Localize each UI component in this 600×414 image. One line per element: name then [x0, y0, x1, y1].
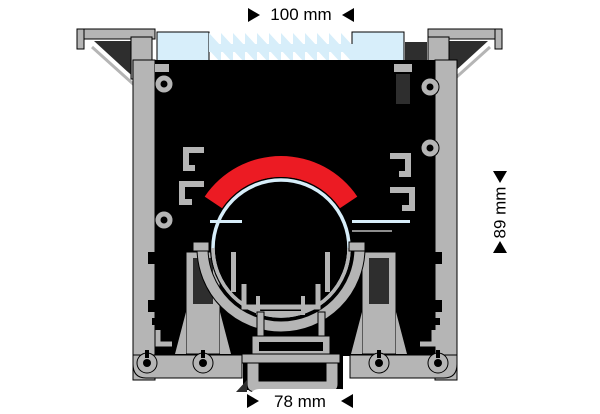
dimension-callout-bottom-width: 78 mm — [248, 389, 352, 413]
fabric-line-right — [352, 220, 410, 223]
dimension-callout-top-width: 100 mm — [249, 2, 353, 27]
dimension-label-side: 89 mm — [491, 186, 508, 238]
insulation-block-right — [352, 32, 404, 64]
roller-tube — [210, 177, 352, 319]
dimension-arrow-left-icon — [248, 8, 260, 22]
dimension-arrow-down-icon — [493, 241, 507, 253]
screw-boss — [421, 78, 439, 96]
insulation-block-left — [157, 32, 209, 64]
fabric-line-left — [210, 220, 242, 223]
screw-boss — [155, 211, 173, 229]
dimension-arrow-left-icon — [247, 394, 259, 408]
dimension-arrow-right-icon — [342, 8, 354, 22]
screw-boss — [155, 75, 173, 93]
screw-boss — [421, 139, 439, 157]
dimension-arrow-up-icon — [493, 171, 507, 183]
dimension-arrow-right-icon — [341, 394, 353, 408]
dimension-label-bottom: 78 mm — [274, 393, 326, 410]
thermal-insulation-strip — [157, 32, 404, 64]
dimension-label-top: 100 mm — [270, 6, 331, 23]
zigzag-teeth-top — [209, 33, 353, 46]
profile-cross-section-diagram: 100 mm 89 mm 78 mm — [0, 0, 600, 414]
dimension-callout-side-height: 89 mm — [477, 172, 522, 252]
